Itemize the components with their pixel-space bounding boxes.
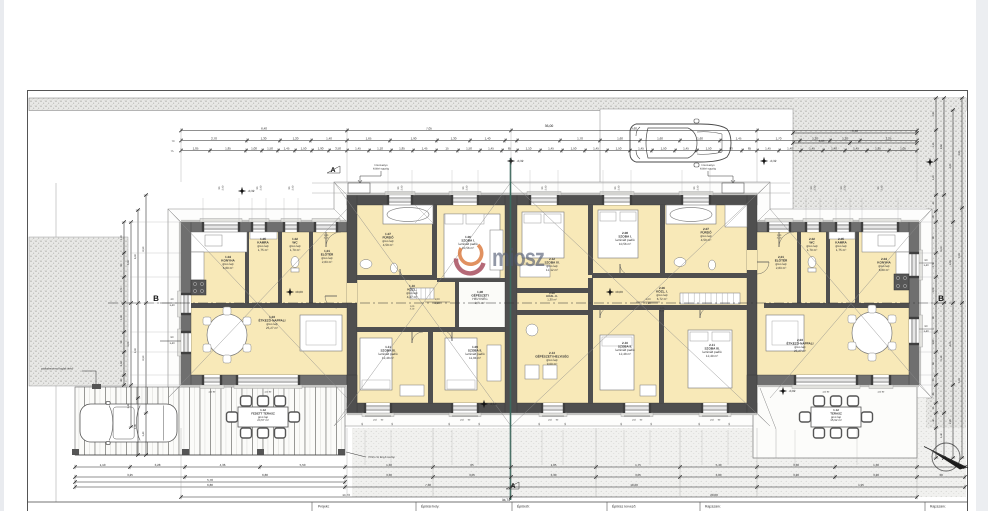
svg-text:14,73: 14,73	[342, 493, 350, 497]
svg-text:1,70: 1,70	[120, 287, 123, 292]
svg-text:1,00: 1,00	[120, 314, 123, 319]
svg-text:1,60: 1,60	[657, 136, 663, 140]
svg-text:12,48 m²: 12,48 m²	[382, 356, 394, 360]
svg-text:1,20: 1,20	[120, 234, 123, 239]
svg-text:12,12 m²: 12,12 m²	[546, 268, 558, 272]
svg-text:1,45: 1,45	[638, 146, 644, 150]
svg-text:1,10: 1,10	[377, 146, 383, 150]
svg-text:6,80: 6,80	[207, 483, 213, 487]
svg-text:1,70: 1,70	[932, 262, 935, 267]
svg-text:6,93: 6,93	[819, 139, 825, 143]
svg-text:1,20: 1,20	[812, 136, 818, 140]
svg-text:3,30: 3,30	[386, 473, 392, 477]
svg-text:9,60: 9,60	[631, 126, 637, 130]
svg-text:-0,02: -0,02	[789, 389, 796, 393]
svg-text:1,40: 1,40	[923, 264, 929, 267]
svg-text:1,20: 1,20	[842, 136, 848, 140]
svg-text:5,00: 5,00	[940, 246, 943, 251]
svg-text:1,50: 1,50	[466, 146, 472, 150]
svg-text:1,60: 1,60	[932, 339, 935, 344]
svg-text:6,80 m²: 6,80 m²	[223, 266, 234, 270]
svg-text:3,00: 3,00	[716, 473, 722, 477]
svg-text:1,95: 1,95	[858, 483, 864, 487]
svg-text:5,00: 5,00	[127, 341, 130, 346]
svg-text:70/15 cm fenyő oszlop: 70/15 cm fenyő oszlop	[368, 456, 395, 459]
svg-text:1,45: 1,45	[736, 136, 742, 140]
svg-text:1,05: 1,05	[900, 146, 906, 150]
svg-text:±0,00: ±0,00	[615, 290, 623, 294]
svg-text:1,45: 1,45	[853, 146, 859, 150]
svg-text:2,80: 2,80	[932, 111, 935, 116]
svg-text:24,57 m²: 24,57 m²	[257, 418, 268, 422]
svg-text:3,05: 3,05	[958, 252, 961, 257]
svg-text:7,05: 7,05	[426, 126, 432, 130]
svg-text:1,45: 1,45	[488, 146, 494, 150]
svg-text:1,45: 1,45	[284, 146, 290, 150]
svg-text:2,40: 2,40	[260, 185, 263, 190]
svg-text:15: 15	[445, 146, 449, 150]
svg-text:12,48 m²: 12,48 m²	[619, 352, 631, 356]
svg-text:1,05: 1,05	[551, 463, 557, 467]
svg-text:2,10: 2,10	[410, 308, 415, 311]
svg-text:-0,32: -0,32	[770, 159, 777, 163]
svg-text:12,40 m²: 12,40 m²	[706, 354, 718, 358]
svg-text:1,00: 1,00	[777, 234, 782, 237]
svg-text:5,40: 5,40	[716, 463, 722, 467]
svg-text:1,85: 1,85	[399, 146, 405, 150]
svg-text:1,70: 1,70	[577, 136, 583, 140]
svg-text:30: 30	[939, 473, 943, 477]
svg-text:6,80 m²: 6,80 m²	[879, 268, 890, 272]
svg-text:4,59 m²: 4,59 m²	[701, 238, 712, 242]
svg-text:10,56 m²: 10,56 m²	[619, 242, 631, 246]
svg-text:1,90: 1,90	[411, 136, 417, 140]
svg-text:3,05: 3,05	[635, 473, 641, 477]
svg-text:2,10: 2,10	[777, 237, 782, 240]
svg-text:90: 90	[729, 146, 733, 150]
svg-text:1,50: 1,50	[661, 146, 667, 150]
svg-text:4,05: 4,05	[949, 259, 952, 264]
svg-text:1,45: 1,45	[422, 146, 428, 150]
svg-text:2,10: 2,10	[324, 237, 329, 240]
svg-text:2,40: 2,40	[844, 185, 847, 190]
svg-text:20,00: 20,00	[710, 493, 718, 497]
svg-text:1,45: 1,45	[683, 146, 689, 150]
svg-text:1,70: 1,70	[776, 136, 782, 140]
svg-text:B: B	[938, 294, 944, 303]
svg-text:2,40: 2,40	[697, 185, 700, 190]
svg-text:1,40: 1,40	[485, 136, 491, 140]
svg-text:8,50: 8,50	[940, 143, 943, 148]
svg-text:1,10: 1,10	[100, 463, 106, 467]
svg-text:1,00: 1,00	[932, 287, 935, 292]
svg-text:miosz: miosz	[492, 244, 545, 272]
svg-text:2,70: 2,70	[211, 136, 217, 140]
svg-text:1,65: 1,65	[366, 136, 372, 140]
svg-text:2,40: 2,40	[814, 185, 817, 190]
svg-text:1,50: 1,50	[616, 146, 622, 150]
svg-text:1,00: 1,00	[324, 234, 329, 237]
svg-text:1,15: 1,15	[932, 142, 935, 147]
svg-text:1,40: 1,40	[831, 146, 837, 150]
svg-text:65: 65	[748, 146, 752, 150]
svg-text:2,71 m²: 2,71 m²	[475, 301, 486, 305]
svg-text:2,10: 2,10	[645, 302, 651, 305]
svg-text:1,40: 1,40	[127, 403, 130, 408]
svg-text:6,40: 6,40	[852, 129, 858, 133]
svg-text:1,90: 1,90	[134, 423, 137, 428]
svg-text:Építtető:: Építtető:	[517, 505, 530, 509]
svg-text:5,70: 5,70	[207, 478, 213, 482]
svg-text:2,40: 2,40	[618, 185, 621, 190]
svg-text:1,10: 1,10	[526, 146, 532, 150]
svg-text:1,50: 1,50	[267, 146, 273, 150]
svg-text:-0,02: -0,02	[490, 402, 497, 406]
svg-text:psd 90: psd 90	[878, 391, 885, 394]
svg-text:1,75 m²: 1,75 m²	[258, 248, 269, 252]
svg-text:1,50: 1,50	[706, 146, 712, 150]
svg-text:Építési hely:: Építési hely:	[421, 505, 440, 509]
svg-text:3,30: 3,30	[551, 473, 557, 477]
svg-text:6,80: 6,80	[262, 473, 268, 477]
svg-text:1,30: 1,30	[451, 136, 457, 140]
svg-text:-0,32: -0,32	[517, 159, 524, 163]
svg-text:3,20: 3,20	[873, 473, 879, 477]
svg-text:1,85: 1,85	[875, 146, 881, 150]
svg-text:1,05: 1,05	[193, 146, 199, 150]
svg-text:3,65: 3,65	[958, 150, 961, 155]
svg-text:25,27 m²: 25,27 m²	[794, 349, 806, 353]
svg-text:1,70 m²: 1,70 m²	[290, 248, 301, 252]
svg-text:1,45: 1,45	[593, 146, 599, 150]
svg-text:padkabetonnal foglalt térkő: padkabetonnal foglalt térkő	[41, 368, 74, 371]
svg-text:3,30: 3,30	[793, 463, 799, 467]
svg-text:2,83 m²: 2,83 m²	[322, 260, 333, 264]
svg-text:2,40: 2,40	[881, 185, 884, 190]
svg-text:2,40: 2,40	[292, 185, 295, 190]
svg-text:1,50: 1,50	[571, 146, 577, 150]
svg-text:1,60: 1,60	[617, 136, 623, 140]
svg-text:1,85: 1,85	[225, 146, 231, 150]
svg-text:Építész tervező:: Építész tervező:	[612, 505, 636, 509]
svg-text:1,20: 1,20	[932, 174, 935, 179]
svg-text:6,50: 6,50	[142, 355, 145, 360]
svg-text:1,70 m²: 1,70 m²	[807, 248, 818, 252]
svg-text:Projekt:: Projekt:	[318, 505, 330, 509]
svg-text:2,25: 2,25	[886, 136, 892, 140]
svg-text:1,30: 1,30	[261, 136, 267, 140]
svg-text:2,40: 2,40	[222, 185, 225, 190]
svg-text:1,40: 1,40	[326, 136, 332, 140]
svg-text:34,73: 34,73	[502, 498, 510, 502]
svg-text:1,40: 1,40	[169, 304, 175, 307]
svg-text:3,20: 3,20	[793, 473, 799, 477]
svg-text:1,75 m²: 1,75 m²	[836, 248, 847, 252]
svg-text:1,45: 1,45	[809, 146, 815, 150]
svg-text:5,50: 5,50	[300, 463, 306, 467]
svg-text:1,60: 1,60	[120, 360, 123, 365]
svg-text:6,50: 6,50	[142, 246, 145, 251]
svg-text:±0,00: ±0,00	[295, 290, 303, 294]
svg-text:1,00: 1,00	[251, 146, 257, 150]
svg-text:5,05: 5,05	[958, 377, 961, 382]
svg-text:2,10: 2,10	[434, 302, 440, 305]
svg-text:25,27 m²: 25,27 m²	[266, 326, 278, 330]
svg-text:4,47 m²: 4,47 m²	[407, 295, 418, 299]
svg-text:2,40: 2,40	[545, 185, 548, 190]
svg-text:1,45: 1,45	[355, 146, 361, 150]
svg-text:1,90: 1,90	[318, 146, 324, 150]
svg-text:1,30: 1,30	[873, 463, 879, 467]
svg-text:1,20: 1,20	[293, 136, 299, 140]
svg-text:6,40: 6,40	[261, 126, 267, 130]
svg-text:11,84 m²: 11,84 m²	[469, 356, 481, 360]
svg-text:kültéri egység: kültéri egység	[373, 168, 390, 171]
svg-text:1,00: 1,00	[645, 298, 651, 301]
svg-text:2,20: 2,20	[949, 418, 952, 423]
svg-text:2,83 m²: 2,83 m²	[776, 266, 787, 270]
svg-text:3,25: 3,25	[127, 473, 133, 477]
svg-text:1,00: 1,00	[434, 298, 440, 301]
svg-text:6,72 m²: 6,72 m²	[657, 297, 668, 301]
svg-text:1,30 m²: 1,30 m²	[547, 297, 557, 301]
svg-text:1,00: 1,00	[410, 305, 415, 308]
svg-text:9,00 m²: 9,00 m²	[547, 362, 558, 366]
svg-text:4,20: 4,20	[949, 163, 952, 168]
svg-text:4,05: 4,05	[949, 341, 952, 346]
svg-text:3,05: 3,05	[469, 473, 475, 477]
svg-text:65: 65	[470, 463, 474, 467]
svg-text:3,50: 3,50	[335, 146, 341, 150]
svg-text:2,10: 2,10	[660, 310, 665, 313]
svg-text:psd 90: psd 90	[823, 391, 830, 394]
svg-text:10,20: 10,20	[630, 483, 638, 487]
svg-text:36,00: 36,00	[545, 124, 554, 128]
svg-text:6,00: 6,00	[134, 253, 137, 258]
svg-text:4,36: 4,36	[220, 463, 226, 467]
svg-text:1,50: 1,50	[301, 146, 307, 150]
svg-text:1,30: 1,30	[386, 463, 392, 467]
svg-text:1,45: 1,45	[548, 146, 554, 150]
svg-text:1,40: 1,40	[169, 342, 175, 345]
svg-text:1,45: 1,45	[765, 146, 771, 150]
svg-text:-0,32: -0,32	[248, 189, 255, 193]
svg-text:4,59 m²: 4,59 m²	[383, 243, 394, 247]
svg-text:Rajzszám:: Rajzszám:	[705, 505, 721, 509]
svg-text:1,75: 1,75	[635, 463, 641, 467]
svg-text:5,10: 5,10	[940, 355, 943, 360]
svg-text:7,38: 7,38	[425, 483, 431, 487]
svg-text:3,28: 3,28	[155, 463, 161, 467]
svg-text:10,56 m²: 10,56 m²	[462, 246, 474, 250]
svg-text:B: B	[153, 294, 159, 303]
svg-text:15,92 m²: 15,92 m²	[830, 418, 841, 422]
svg-text:1,40: 1,40	[142, 431, 145, 436]
svg-text:1,40: 1,40	[940, 432, 943, 437]
svg-text:1,40: 1,40	[923, 330, 929, 333]
svg-text:1,00: 1,00	[660, 307, 665, 310]
svg-text:Rajzszám:: Rajzszám:	[930, 505, 946, 509]
svg-text:1,40: 1,40	[787, 146, 793, 150]
svg-text:2,40: 2,40	[466, 185, 469, 190]
svg-text:1,60: 1,60	[697, 136, 703, 140]
svg-text:5,00: 5,00	[127, 259, 130, 264]
svg-text:kültéri egység: kültéri egység	[700, 168, 717, 171]
svg-text:psd 90: psd 90	[265, 391, 272, 394]
svg-text:2,40: 2,40	[401, 185, 404, 190]
svg-text:psd 90: psd 90	[209, 391, 216, 394]
